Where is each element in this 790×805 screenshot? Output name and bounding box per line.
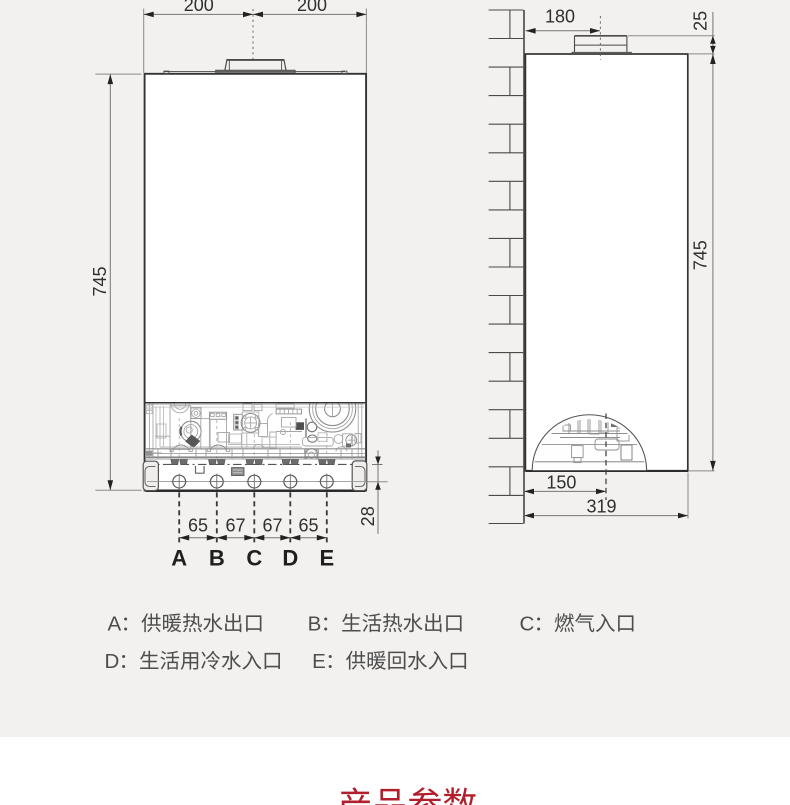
svg-text:200: 200 (184, 0, 214, 15)
svg-text:D: D (105, 650, 120, 673)
svg-text:67: 67 (262, 516, 282, 536)
svg-text:319: 319 (586, 496, 616, 516)
svg-text:A: A (171, 546, 187, 571)
svg-text:B: B (308, 613, 322, 636)
svg-text:67: 67 (225, 516, 245, 536)
svg-text:C: C (246, 546, 262, 571)
svg-text:150: 150 (546, 472, 576, 492)
svg-text:E: E (312, 650, 326, 673)
svg-text:A: A (108, 613, 122, 636)
svg-text:E: E (319, 546, 334, 571)
svg-text:65: 65 (298, 516, 318, 536)
svg-text:745: 745 (90, 266, 110, 296)
svg-text:28: 28 (358, 506, 378, 526)
svg-text:D: D (282, 546, 298, 571)
svg-text:180: 180 (545, 6, 575, 26)
svg-text:745: 745 (691, 240, 711, 270)
svg-text:200: 200 (297, 0, 327, 15)
svg-text:25: 25 (690, 11, 710, 31)
svg-text:B: B (209, 546, 225, 571)
svg-text:C: C (520, 613, 535, 636)
svg-text:65: 65 (188, 516, 208, 536)
